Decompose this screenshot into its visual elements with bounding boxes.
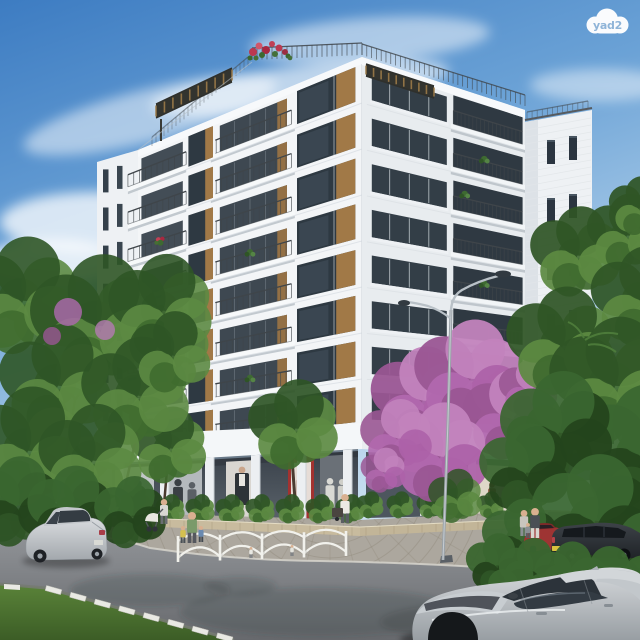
person-leg: [528, 533, 530, 538]
tower-window: [547, 198, 555, 222]
yad2-cloud-icon: yad2: [581, 7, 633, 37]
wood-shutter: [336, 296, 355, 335]
person-head: [526, 523, 530, 527]
person-leg: [531, 528, 535, 538]
person-leg: [251, 554, 252, 558]
foliage: [385, 467, 406, 488]
person-torso: [526, 527, 531, 534]
door-handle: [536, 612, 547, 615]
person-leg: [536, 528, 540, 538]
wood-shutter: [205, 167, 213, 201]
wood-shutter: [336, 204, 355, 244]
suit-man-head: [239, 467, 246, 474]
person-head: [181, 526, 185, 530]
person-head: [250, 547, 253, 550]
person-head: [291, 545, 294, 548]
foliage: [173, 345, 210, 382]
person-leg: [526, 533, 528, 538]
person-head: [161, 499, 168, 506]
roof-flowers: [288, 56, 293, 61]
foliage: [371, 503, 383, 515]
stroller-wheel: [146, 526, 151, 531]
wood-shutter: [205, 126, 213, 160]
side-window: [117, 166, 123, 189]
tower-window: [547, 140, 555, 164]
mannequin: [189, 482, 196, 489]
curb-stone: [4, 584, 20, 590]
person-torso: [530, 515, 540, 528]
wood-shutter: [336, 250, 355, 289]
roof-flowers: [249, 48, 257, 56]
tree-shadow: [204, 577, 276, 595]
listing-photo: yad2: [0, 0, 640, 640]
side-window: [117, 204, 123, 227]
person-leg: [249, 554, 250, 558]
rendering-scene: [0, 0, 640, 640]
person-torso: [187, 519, 197, 533]
person-head: [531, 508, 539, 516]
lamp-head: [398, 300, 410, 306]
bougainvillea: [43, 327, 61, 345]
roof-flowers: [269, 41, 275, 47]
person-leg: [161, 516, 164, 524]
side-window: [103, 208, 109, 231]
person-head: [188, 512, 196, 520]
person-leg: [199, 537, 201, 542]
tower-window: [569, 136, 577, 160]
foliage: [261, 506, 275, 520]
foliage: [296, 417, 338, 459]
roof-flowers: [259, 52, 265, 58]
foliage: [399, 429, 432, 462]
foliage: [291, 506, 305, 520]
wood-shutter: [336, 342, 355, 380]
suv-taillight: [552, 537, 555, 543]
person-torso: [180, 530, 185, 537]
person-torso: [249, 550, 253, 555]
person-torso: [290, 548, 294, 553]
wood-shutter: [336, 159, 355, 200]
roof-flowers: [272, 51, 278, 57]
hub: [95, 552, 99, 556]
foliage: [201, 506, 215, 520]
stroller-wheel: [152, 526, 157, 531]
cart: [332, 508, 343, 517]
wood-shutter: [336, 113, 355, 154]
sedan-taillight: [99, 530, 105, 535]
yad2-logo-text: yad2: [593, 19, 622, 32]
sedan-rear-window: [58, 510, 90, 523]
roof-flowers: [248, 56, 253, 61]
person-leg: [193, 533, 197, 543]
person-leg: [181, 537, 183, 543]
wood-shutter: [205, 207, 213, 241]
person-head: [199, 526, 203, 530]
wood-shutter: [205, 248, 213, 281]
mannequin: [327, 478, 334, 485]
bougainvillea: [54, 298, 82, 326]
side-mirror: [508, 593, 518, 599]
roof-flowers: [276, 45, 283, 52]
suit-shirt: [239, 474, 245, 486]
roof-flowers: [256, 43, 263, 50]
person-leg: [183, 537, 185, 543]
person-leg: [346, 513, 349, 523]
side-window: [103, 169, 109, 192]
person-leg: [165, 516, 168, 524]
foliage: [171, 506, 185, 520]
yad2-logo-badge: yad2: [581, 7, 633, 37]
bougainvillea: [95, 320, 115, 340]
wood-shutter: [336, 387, 355, 424]
foliage: [231, 506, 245, 520]
sedan-plate: [94, 540, 103, 545]
person-leg: [201, 537, 203, 542]
roof-flowers: [254, 56, 259, 61]
foliage: [171, 439, 206, 474]
person-leg: [188, 533, 192, 543]
foliage: [401, 503, 413, 515]
person-leg: [290, 552, 291, 556]
door-handle: [604, 604, 613, 607]
lamp-head: [495, 271, 511, 278]
person-head: [341, 494, 349, 502]
person-torso: [198, 530, 203, 537]
mannequin: [174, 479, 181, 486]
foliage: [457, 492, 482, 517]
hub: [37, 553, 42, 558]
cart-wheel: [335, 517, 339, 521]
person-leg: [292, 552, 293, 556]
glass-reflection: [299, 349, 328, 383]
person-head: [521, 510, 528, 517]
person-leg: [520, 527, 523, 536]
